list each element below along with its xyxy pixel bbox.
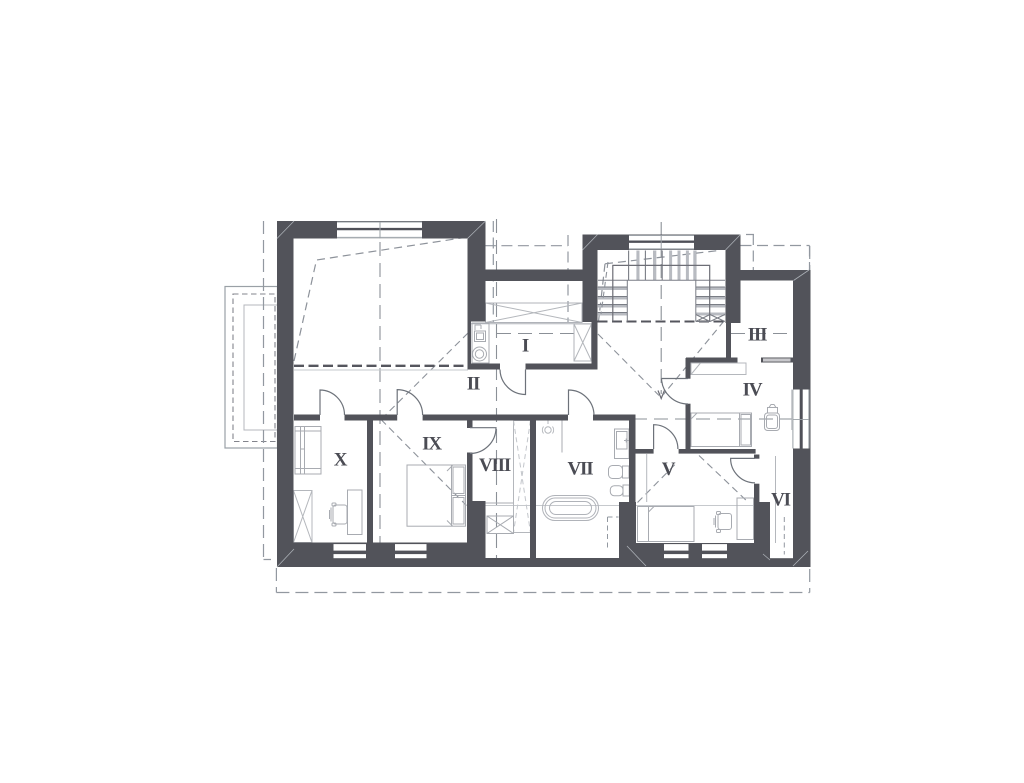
svg-text:V: V [662,459,676,480]
svg-text:IX: IX [422,434,442,455]
svg-text:VI: VI [771,490,791,511]
svg-text:VIII: VIII [479,455,511,476]
svg-text:VII: VII [568,459,594,480]
svg-text:IV: IV [743,380,763,401]
svg-text:III: III [748,325,767,346]
svg-text:X: X [334,449,348,470]
svg-text:I: I [522,336,529,357]
svg-text:II: II [467,374,480,395]
